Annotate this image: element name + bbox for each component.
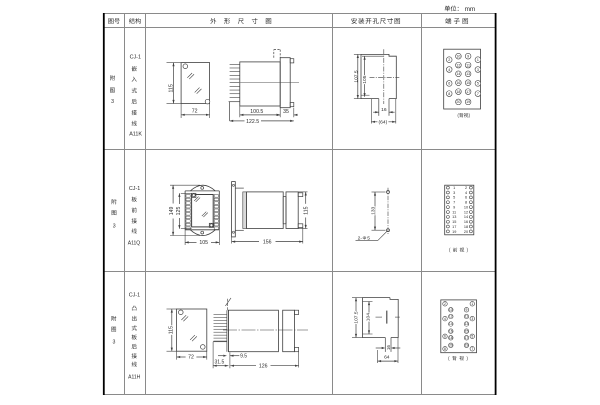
svg-text:20: 20 — [449, 344, 453, 348]
svg-text:14: 14 — [464, 215, 468, 219]
svg-text:122.5: 122.5 — [246, 119, 259, 125]
svg-text:16: 16 — [381, 107, 387, 113]
svg-text:13: 13 — [466, 72, 470, 76]
svg-text:17: 17 — [466, 90, 470, 94]
svg-text:6: 6 — [444, 335, 446, 339]
svg-text:126: 126 — [259, 364, 268, 370]
svg-text:A11K: A11K — [129, 131, 142, 137]
svg-text:12: 12 — [464, 210, 468, 214]
svg-text:mm: mm — [465, 6, 476, 13]
svg-text:5: 5 — [453, 196, 455, 200]
svg-text:16: 16 — [449, 329, 453, 333]
svg-text:8: 8 — [444, 347, 446, 351]
svg-text:1: 1 — [453, 186, 455, 190]
svg-text:18: 18 — [449, 336, 453, 340]
svg-text:3: 3 — [113, 224, 116, 230]
svg-text:8: 8 — [465, 201, 467, 205]
svg-text:20: 20 — [464, 230, 468, 234]
svg-text:2: 2 — [448, 58, 450, 62]
svg-text:3: 3 — [453, 191, 455, 195]
svg-text:5: 5 — [477, 82, 479, 86]
svg-text:14: 14 — [449, 322, 453, 326]
svg-text:6: 6 — [465, 196, 467, 200]
svg-text:12: 12 — [456, 63, 460, 67]
svg-text:19: 19 — [465, 344, 469, 348]
svg-text:11: 11 — [465, 315, 469, 319]
svg-text:13: 13 — [465, 322, 469, 326]
svg-text:6: 6 — [448, 82, 450, 86]
svg-text:105: 105 — [199, 240, 208, 246]
svg-text:107.5: 107.5 — [353, 70, 359, 83]
svg-text:4: 4 — [448, 68, 450, 72]
svg-text:7: 7 — [477, 92, 479, 96]
svg-text:2: 2 — [465, 186, 467, 190]
svg-text:19: 19 — [452, 230, 456, 234]
svg-text:8: 8 — [448, 92, 450, 96]
svg-text:9: 9 — [467, 54, 469, 58]
svg-text:9: 9 — [466, 308, 468, 312]
svg-text:5: 5 — [471, 335, 473, 339]
svg-text:149: 149 — [169, 206, 175, 215]
svg-text:CJ-1: CJ-1 — [130, 54, 141, 60]
svg-text:31.5: 31.5 — [215, 359, 225, 365]
svg-text:18: 18 — [456, 90, 460, 94]
svg-text:15: 15 — [452, 220, 456, 224]
svg-text:16: 16 — [464, 220, 468, 224]
svg-text:115: 115 — [304, 206, 310, 214]
svg-text:115: 115 — [168, 326, 174, 334]
svg-text:14: 14 — [456, 72, 460, 76]
svg-text:17: 17 — [465, 336, 469, 340]
svg-text:10: 10 — [464, 205, 468, 209]
svg-text:(64): (64) — [379, 119, 388, 125]
svg-text:CJ-1: CJ-1 — [129, 292, 140, 298]
svg-text:3: 3 — [112, 340, 115, 346]
svg-text:18: 18 — [464, 225, 468, 229]
svg-text:16: 16 — [386, 345, 391, 351]
svg-text:19: 19 — [466, 100, 470, 104]
svg-text:7: 7 — [453, 201, 455, 205]
svg-text:115: 115 — [168, 84, 174, 92]
svg-text:12: 12 — [449, 315, 453, 319]
svg-text:7: 7 — [471, 347, 473, 351]
svg-text:A11Q: A11Q — [128, 241, 141, 247]
svg-text:4: 4 — [444, 317, 446, 321]
svg-text:9.5: 9.5 — [240, 353, 247, 359]
svg-text:9: 9 — [453, 205, 455, 209]
svg-text:3: 3 — [111, 99, 114, 105]
svg-text:156: 156 — [263, 239, 272, 245]
svg-text:72: 72 — [192, 109, 198, 115]
svg-text:13: 13 — [452, 215, 456, 219]
svg-text:100.5: 100.5 — [250, 109, 263, 115]
svg-text:15: 15 — [465, 329, 469, 333]
svg-text:107.5: 107.5 — [353, 311, 359, 324]
svg-text:CJ-1: CJ-1 — [129, 186, 140, 192]
svg-text:105: 105 — [362, 75, 368, 83]
svg-text:16: 16 — [456, 81, 460, 85]
svg-text:133: 133 — [371, 206, 377, 214]
svg-text:15: 15 — [466, 81, 470, 85]
svg-text:20: 20 — [456, 100, 460, 104]
svg-text:64: 64 — [384, 354, 390, 360]
svg-text:1: 1 — [477, 58, 479, 62]
svg-text:35: 35 — [283, 109, 289, 115]
svg-text:1: 1 — [471, 302, 473, 306]
svg-text:3: 3 — [471, 317, 473, 321]
svg-text:11: 11 — [452, 210, 456, 214]
svg-text:3: 3 — [477, 68, 479, 72]
svg-text:104: 104 — [366, 313, 372, 321]
svg-text:A11H: A11H — [128, 374, 141, 380]
svg-text:10: 10 — [456, 54, 460, 58]
svg-text:17: 17 — [452, 225, 456, 229]
svg-text:11: 11 — [466, 63, 470, 67]
svg-text:10: 10 — [449, 308, 453, 312]
svg-text:2: 2 — [444, 302, 446, 306]
svg-text:4: 4 — [465, 191, 467, 195]
svg-text:125: 125 — [176, 207, 182, 216]
svg-text:72: 72 — [188, 355, 194, 361]
